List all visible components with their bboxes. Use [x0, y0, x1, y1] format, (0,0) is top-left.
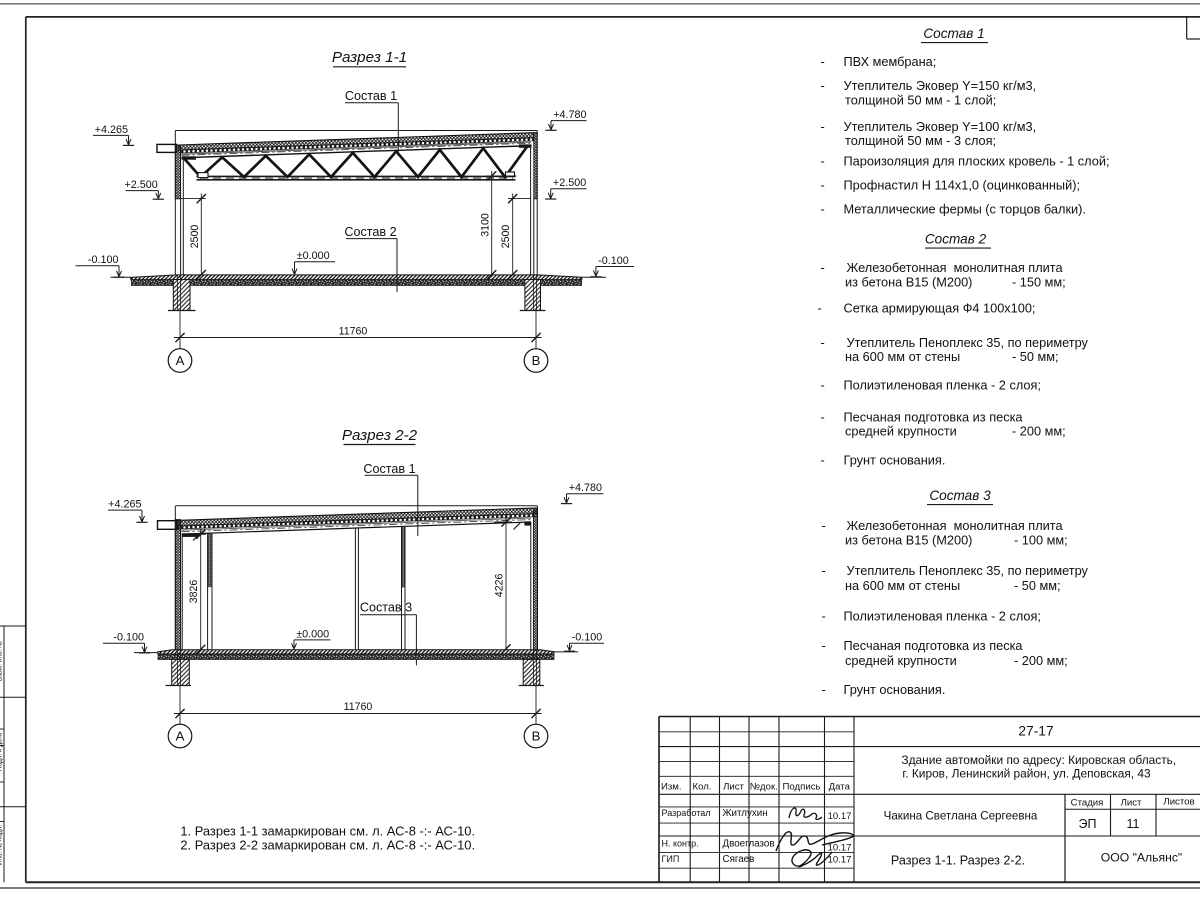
svg-text:10.17: 10.17: [828, 842, 852, 853]
svg-text:Сетка армирующая Ф4 100х100;: Сетка армирующая Ф4 100х100;: [844, 301, 1036, 316]
svg-text:г. Киров, Ленинский район, ул.: г. Киров, Ленинский район, ул. Деповская…: [902, 766, 1151, 780]
svg-text:3826: 3826: [188, 580, 200, 604]
svg-text:Разрез 1-1. Разрез 2-2.: Разрез 1-1. Разрез 2-2.: [891, 854, 1025, 868]
svg-text:Состав 2: Состав 2: [925, 232, 987, 247]
svg-text:Стадия: Стадия: [1071, 797, 1104, 808]
svg-text:10.17: 10.17: [828, 811, 852, 822]
svg-text:средней крупности: средней крупности: [845, 424, 957, 439]
svg-text:+4.780: +4.780: [553, 109, 586, 121]
svg-text:+4.780: +4.780: [569, 482, 602, 494]
svg-text:Полиэтиленовая пленка - 2 слоя: Полиэтиленовая пленка - 2 слоя;: [844, 378, 1041, 393]
svg-text:ООО "Альянс": ООО "Альянс": [1101, 851, 1183, 865]
svg-text:- 50 мм;: - 50 мм;: [1014, 578, 1061, 593]
svg-text:Подп. и дата: Подп. и дата: [0, 732, 4, 771]
svg-text:Профнастил Н 114х1,0 (оцинкова: Профнастил Н 114х1,0 (оцинкованный);: [844, 178, 1081, 193]
svg-text:-: -: [822, 682, 826, 697]
svg-text:- 200 мм;: - 200 мм;: [1012, 424, 1066, 439]
svg-text:Состав 3: Состав 3: [929, 488, 991, 503]
svg-text:Листов: Листов: [1163, 796, 1194, 807]
svg-text:Утеплитель Пеноплекс 35, по пе: Утеплитель Пеноплекс 35, по периметру: [847, 335, 1089, 350]
svg-text:Сягаев: Сягаев: [723, 854, 755, 865]
svg-text:-: -: [821, 410, 825, 425]
svg-text:-: -: [821, 378, 825, 393]
svg-text:Разработал: Разработал: [662, 808, 711, 818]
svg-text:Лист: Лист: [723, 781, 744, 792]
svg-text:Состав 1: Состав 1: [363, 462, 415, 476]
svg-text:11760: 11760: [339, 325, 368, 337]
svg-text:-: -: [821, 119, 825, 134]
svg-text:-: -: [821, 335, 825, 350]
svg-text:Утеплитель Пеноплекс 35, по пе: Утеплитель Пеноплекс 35, по периметру: [847, 563, 1089, 578]
svg-text:из бетона В15 (М200): из бетона В15 (М200): [845, 533, 972, 548]
svg-text:Железобетонная монолитная пли: Железобетонная монолитная плита: [847, 260, 1064, 275]
svg-text:+4.265: +4.265: [108, 499, 141, 511]
svg-text:Взам. инв. №: Взам. инв. №: [0, 641, 4, 681]
svg-text:Разрез 2-2: Разрез 2-2: [342, 427, 418, 444]
svg-text:±0.000: ±0.000: [296, 628, 329, 640]
svg-text:27-17: 27-17: [1018, 724, 1053, 739]
svg-text:ГИП: ГИП: [662, 854, 680, 864]
svg-text:-: -: [821, 78, 825, 93]
svg-text:-: -: [821, 260, 825, 275]
svg-text:№док.: №док.: [750, 781, 778, 792]
svg-text:Грунт основания.: Грунт основания.: [844, 453, 946, 468]
svg-text:-: -: [818, 301, 822, 316]
svg-text:11760: 11760: [344, 701, 373, 713]
svg-text:1. Разрез 1-1 замаркирован см.: 1. Разрез 1-1 замаркирован см. л. АС-8 -…: [180, 824, 475, 839]
svg-text:-0.100: -0.100: [113, 632, 144, 644]
svg-text:-: -: [821, 154, 825, 169]
svg-text:-: -: [821, 202, 825, 217]
svg-text:+2.500: +2.500: [553, 177, 586, 189]
svg-text:Железобетонная монолитная пли: Железобетонная монолитная плита: [847, 518, 1064, 533]
svg-text:-: -: [822, 609, 826, 624]
svg-text:2500: 2500: [189, 225, 201, 249]
svg-text:Полиэтиленовая пленка - 2 слоя: Полиэтиленовая пленка - 2 слоя;: [844, 609, 1041, 624]
svg-text:Чакина Светлана Сергеевна: Чакина Светлана Сергеевна: [884, 809, 1038, 822]
svg-text:-0.100: -0.100: [88, 254, 119, 266]
svg-text:на 600 мм от стены: на 600 мм от стены: [845, 349, 960, 364]
svg-text:-: -: [822, 518, 826, 533]
svg-text:Состав 3: Состав 3: [360, 601, 412, 615]
svg-text:Утеплитель Эковер Y=100 кг/м3,: Утеплитель Эковер Y=100 кг/м3,: [844, 119, 1037, 134]
svg-text:Двоеглазов: Двоеглазов: [723, 839, 775, 850]
svg-text:-0.100: -0.100: [572, 632, 603, 644]
svg-text:Житлухин: Житлухин: [723, 808, 768, 819]
svg-text:3100: 3100: [479, 213, 491, 237]
svg-text:Инв. № подл.: Инв. № подл.: [0, 825, 4, 866]
svg-text:2. Разрез 2-2 замаркирован см.: 2. Разрез 2-2 замаркирован см. л. АС-8 -…: [180, 838, 475, 853]
svg-text:А: А: [176, 353, 185, 368]
svg-text:Утеплитель Эковер Y=150 кг/м3,: Утеплитель Эковер Y=150 кг/м3,: [844, 78, 1037, 93]
svg-text:2500: 2500: [500, 225, 512, 249]
svg-text:из бетона В15 (М200): из бетона В15 (М200): [845, 275, 972, 290]
svg-text:ЭП: ЭП: [1079, 817, 1097, 831]
svg-text:±0.000: ±0.000: [297, 250, 330, 262]
svg-text:Подпись: Подпись: [783, 781, 821, 792]
svg-text:+2.500: +2.500: [124, 179, 157, 191]
svg-text:Кол.: Кол.: [693, 781, 712, 792]
svg-text:-0.100: -0.100: [598, 255, 629, 267]
svg-text:11: 11: [1127, 817, 1140, 831]
svg-text:Состав 1: Состав 1: [345, 89, 397, 103]
svg-text:Песчаная подготовка из песка: Песчаная подготовка из песка: [844, 410, 1024, 425]
svg-text:на 600 мм от стены: на 600 мм от стены: [845, 578, 960, 593]
svg-text:-: -: [822, 638, 826, 653]
svg-text:А: А: [176, 729, 185, 744]
svg-text:Металлические фермы (с торцов: Металлические фермы (с торцов балки).: [844, 202, 1086, 217]
svg-text:толщиной 50 мм - 3 слоя;: толщиной 50 мм - 3 слоя;: [845, 133, 996, 148]
svg-text:- 100 мм;: - 100 мм;: [1014, 533, 1068, 548]
svg-text:-: -: [821, 453, 825, 468]
svg-text:толщиной 50 мм - 1 слой;: толщиной 50 мм - 1 слой;: [845, 93, 996, 108]
svg-text:ПВХ мембрана;: ПВХ мембрана;: [844, 54, 937, 69]
svg-text:4226: 4226: [494, 574, 506, 598]
svg-text:- 50 мм;: - 50 мм;: [1012, 349, 1059, 364]
svg-text:Песчаная подготовка из песка: Песчаная подготовка из песка: [844, 638, 1024, 653]
svg-text:- 200 мм;: - 200 мм;: [1014, 653, 1068, 668]
svg-text:средней крупности: средней крупности: [845, 653, 957, 668]
svg-text:Изм.: Изм.: [661, 781, 682, 792]
svg-text:Разрез 1-1: Разрез 1-1: [332, 49, 407, 66]
svg-text:Н. контр.: Н. контр.: [662, 839, 699, 849]
svg-text:+4.265: +4.265: [95, 124, 128, 136]
svg-text:-: -: [821, 54, 825, 69]
svg-text:В: В: [532, 729, 541, 744]
svg-text:Лист: Лист: [1121, 797, 1142, 808]
svg-text:В: В: [532, 353, 541, 368]
svg-text:Пароизоляция для плоских крове: Пароизоляция для плоских кровель - 1 сло…: [844, 154, 1110, 169]
svg-text:Состав 1: Состав 1: [923, 26, 984, 41]
svg-text:10.17: 10.17: [828, 854, 852, 865]
svg-text:Грунт основания.: Грунт основания.: [844, 682, 946, 697]
svg-text:Здание автомойки по адресу: Ки: Здание автомойки по адресу: Кировская об…: [901, 753, 1176, 767]
svg-text:Состав 2: Состав 2: [344, 225, 396, 239]
svg-text:-: -: [822, 563, 826, 578]
svg-text:-: -: [821, 178, 825, 193]
svg-text:- 150 мм;: - 150 мм;: [1012, 275, 1066, 290]
svg-text:Дата: Дата: [829, 781, 851, 792]
